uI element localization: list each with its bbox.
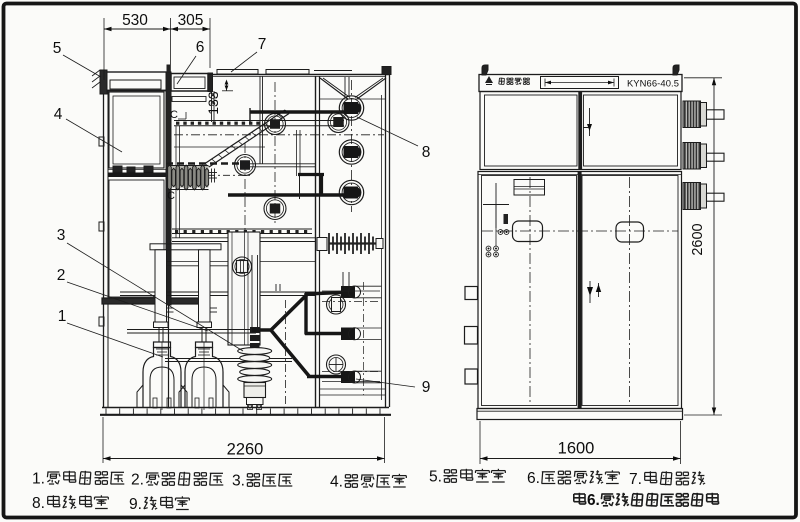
svg-text:4.: 4. [330, 473, 343, 490]
svg-text:7: 7 [258, 36, 267, 53]
svg-text:305: 305 [178, 12, 204, 29]
svg-text:6: 6 [196, 39, 205, 56]
svg-text:4: 4 [54, 106, 63, 123]
svg-text:3.: 3. [232, 472, 245, 489]
svg-text:1600: 1600 [558, 440, 595, 458]
svg-text:1.: 1. [32, 470, 45, 487]
svg-text:5.: 5. [429, 468, 442, 485]
svg-text:8: 8 [422, 144, 431, 161]
svg-text:7.: 7. [629, 471, 642, 488]
svg-text:2600: 2600 [690, 223, 706, 255]
svg-text:5: 5 [53, 40, 62, 57]
svg-text:9.: 9. [129, 496, 142, 513]
svg-text:530: 530 [122, 12, 148, 29]
svg-text:6.: 6. [587, 492, 600, 509]
svg-text:133: 133 [205, 91, 221, 115]
svg-text:9: 9 [422, 379, 431, 396]
svg-text:C: C [167, 190, 175, 202]
svg-text:KYN66-40.5: KYN66-40.5 [627, 77, 679, 88]
svg-text:2260: 2260 [227, 441, 264, 459]
svg-text:2: 2 [57, 267, 66, 284]
svg-text:1: 1 [58, 308, 67, 325]
svg-text:8.: 8. [32, 495, 45, 512]
svg-text:6.: 6. [527, 470, 540, 487]
svg-text:2.: 2. [131, 471, 144, 488]
svg-text:C: C [170, 109, 178, 121]
svg-text:3: 3 [57, 227, 66, 244]
